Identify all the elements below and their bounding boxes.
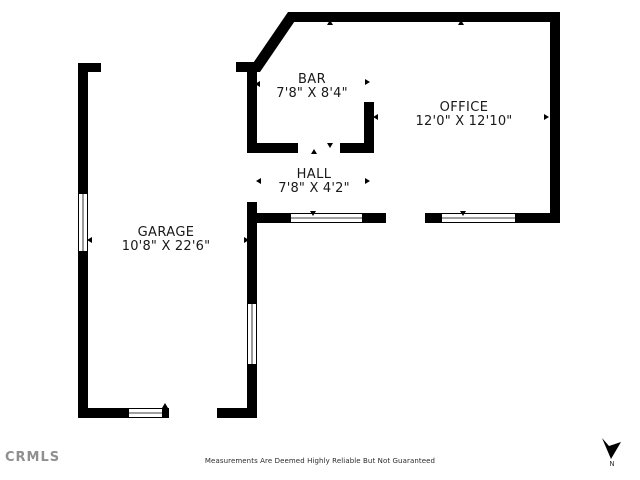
- room-dimensions: 12'0" X 12'10": [416, 115, 513, 129]
- wall-garage-right-upper: [247, 202, 257, 303]
- marker-arrow-down-icon: [327, 143, 333, 148]
- room-label-office: OFFICE 12'0" X 12'10": [416, 101, 513, 129]
- room-name: GARAGE: [122, 226, 211, 240]
- marker-arrow-right-icon: [544, 114, 549, 120]
- window-hall-bottom: [291, 214, 363, 223]
- room-dimensions: 7'8" X 4'2": [278, 182, 350, 196]
- marker-arrow-up-icon: [162, 403, 168, 408]
- window-garage-right: [248, 304, 257, 365]
- wall-garage-bottom-mid: [163, 408, 169, 418]
- wall-garage-left-lower: [78, 252, 88, 418]
- room-dimensions: 10'8" X 22'6": [122, 240, 211, 254]
- wall-office-bottom-right: [516, 213, 560, 223]
- room-label-bar: BAR 7'8" X 8'4": [276, 73, 348, 101]
- room-name: BAR: [276, 73, 348, 87]
- window-garage-bottom: [129, 409, 163, 418]
- window-office-bottom: [442, 214, 516, 223]
- wall-garage-bottom-right: [217, 408, 257, 418]
- wall-bar-bottom-left: [253, 143, 298, 153]
- marker-arrow-right-icon: [365, 79, 370, 85]
- wall-garage-left-upper: [78, 63, 88, 193]
- wall-bar-left: [247, 62, 257, 153]
- room-name: HALL: [278, 168, 350, 182]
- wall-bar-partition: [364, 102, 374, 153]
- wall-hall-bottom-right: [363, 213, 386, 223]
- north-label: N: [603, 460, 621, 468]
- room-dimensions: 7'8" X 8'4": [276, 87, 348, 101]
- wall-garage-bottom-left: [78, 408, 128, 418]
- wall-top: [288, 12, 560, 22]
- room-label-garage: GARAGE 10'8" X 22'6": [122, 226, 211, 254]
- north-arrow-icon: [602, 438, 621, 459]
- window-garage-left: [79, 194, 88, 252]
- room-name: OFFICE: [416, 101, 513, 115]
- room-label-hall: HALL 7'8" X 4'2": [278, 168, 350, 196]
- marker-arrow-up-icon: [311, 149, 317, 154]
- marker-arrow-left-icon: [256, 178, 261, 184]
- marker-arrow-right-icon: [365, 178, 370, 184]
- disclaimer-text: Measurements Are Deemed Highly Reliable …: [0, 457, 640, 465]
- floorplan-canvas: BAR 7'8" X 8'4" OFFICE 12'0" X 12'10" HA…: [0, 0, 640, 480]
- wall-office-bottom-left: [425, 213, 441, 223]
- wall-right: [550, 12, 560, 223]
